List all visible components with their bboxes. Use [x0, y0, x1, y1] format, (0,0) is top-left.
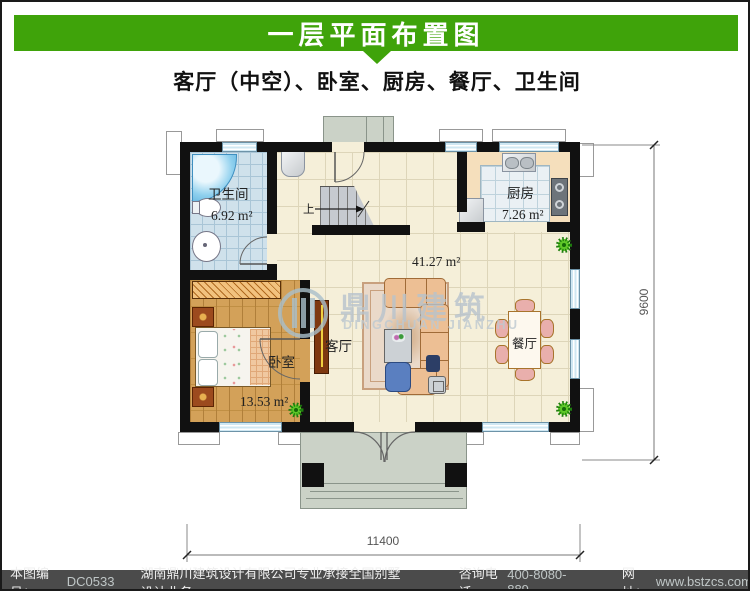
laundry-machine	[281, 150, 305, 177]
website-url[interactable]: www.bstzcs.com	[656, 574, 750, 589]
floor-plan: 卫生间 6.92 m² 厨房 7.26 m² 41.27 m² 客厅 卧室 13…	[2, 2, 750, 562]
kitchen-label: 厨房	[507, 182, 534, 202]
window	[445, 142, 477, 152]
bed	[195, 327, 271, 387]
window-sill	[492, 129, 566, 142]
stove-burner	[555, 200, 564, 209]
website-label: 网址：	[622, 563, 656, 591]
bathroom-area: 6.92 m²	[211, 208, 253, 224]
living-room-area: 41.27 m²	[412, 254, 460, 270]
phone-label: 咨询电话:	[459, 563, 508, 591]
porch-step-line	[306, 498, 463, 499]
porch-column	[445, 463, 467, 487]
door-opening	[332, 142, 364, 152]
door-opening	[267, 234, 277, 264]
dining-chair	[540, 345, 554, 364]
interior-wall	[300, 280, 310, 339]
bed-blanket	[250, 329, 270, 385]
dining-label: 餐厅	[512, 333, 537, 352]
pillow	[198, 331, 218, 358]
living-room-label: 客厅	[325, 335, 352, 355]
coffee-table	[384, 329, 412, 363]
pillow	[198, 359, 218, 386]
window-sill	[578, 388, 594, 432]
stairs-up-label: 上	[303, 201, 315, 217]
door-opening	[485, 222, 547, 232]
dining-chair	[495, 319, 509, 338]
wardrobe	[192, 281, 281, 299]
window	[570, 269, 580, 309]
interior-wall	[457, 222, 485, 232]
window-sill	[550, 432, 580, 445]
interior-wall	[547, 222, 570, 232]
exterior-wall-left	[180, 142, 190, 432]
armchair-blue	[385, 362, 411, 392]
bathroom-label: 卫生间	[208, 183, 249, 203]
drawing-number-label: 本图编号：	[10, 563, 67, 591]
bedroom-area: 13.53 m²	[240, 394, 288, 410]
kitchen-area: 7.26 m²	[502, 207, 544, 223]
wash-basin-drain	[203, 243, 207, 247]
window	[219, 422, 282, 432]
toilet-tank	[192, 201, 200, 214]
side-table	[428, 376, 446, 394]
interior-wall	[267, 152, 277, 234]
window-sill	[216, 129, 264, 142]
footer-bar: 本图编号：DC0533 湖南鼎川建筑设计有限公司专业承接全国别墅设计业务 咨询电…	[2, 570, 750, 591]
window-sill	[578, 143, 594, 177]
window	[499, 142, 559, 152]
door-opening	[300, 339, 310, 382]
interior-wall	[190, 270, 277, 280]
nightstand	[192, 307, 214, 327]
kitchen-sink-basin	[520, 157, 534, 169]
bedroom-label: 卧室	[268, 351, 295, 371]
drawing-number-value: DC0533	[67, 574, 115, 589]
back-porch-step-line	[366, 116, 367, 143]
page: 一层平面布置图 客厅（中空）、卧室、厨房、餐厅、卫生间	[0, 0, 750, 591]
porch-step-line	[310, 491, 459, 492]
window-sill	[178, 432, 220, 445]
stair-wall	[312, 225, 410, 235]
porch-column	[302, 463, 324, 487]
door-opening	[354, 422, 415, 432]
window	[482, 422, 549, 432]
company-text: 湖南鼎川建筑设计有限公司专业承接全国别墅设计业务	[140, 563, 412, 591]
nightstand	[192, 387, 214, 407]
dimension-height-label: 9600	[637, 280, 651, 324]
dining-chair	[495, 345, 509, 364]
kitchen-sink-basin	[505, 157, 519, 169]
back-porch-step-line	[383, 116, 384, 143]
interior-wall	[300, 382, 310, 422]
wash-basin	[192, 231, 221, 262]
stove-burner	[555, 183, 564, 192]
cushion-navy	[426, 355, 440, 372]
dining-chair	[540, 319, 554, 338]
window	[222, 142, 257, 152]
dimension-width-label: 11400	[343, 534, 423, 548]
phone-number: 400-8080-889	[507, 567, 578, 591]
dining-chair	[515, 367, 535, 381]
bed-cover	[218, 329, 250, 385]
porch-step-line	[310, 483, 459, 484]
window-sill	[439, 129, 483, 142]
window	[570, 339, 580, 379]
interior-wall	[457, 152, 467, 212]
